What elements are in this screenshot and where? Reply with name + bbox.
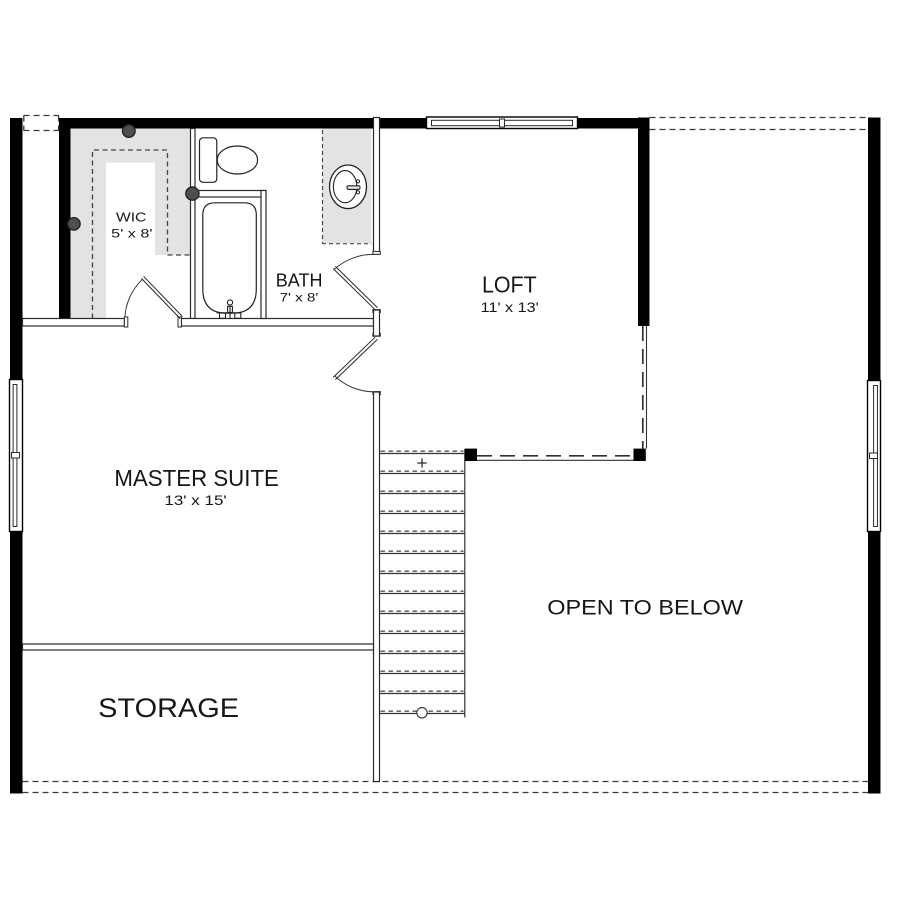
svg-text:OPEN TO BELOW: OPEN TO BELOW [547, 596, 743, 620]
svg-text:BATH: BATH [276, 270, 323, 291]
svg-text:11' x 13': 11' x 13' [481, 299, 539, 315]
svg-text:STORAGE: STORAGE [98, 693, 239, 723]
svg-text:LOFT: LOFT [482, 272, 537, 298]
svg-text:7' x 8': 7' x 8' [280, 291, 319, 305]
svg-text:WIC: WIC [116, 209, 146, 224]
svg-text:13' x 15': 13' x 15' [164, 492, 226, 508]
svg-text:5' x 8': 5' x 8' [111, 227, 152, 241]
svg-text:MASTER SUITE: MASTER SUITE [114, 465, 279, 491]
